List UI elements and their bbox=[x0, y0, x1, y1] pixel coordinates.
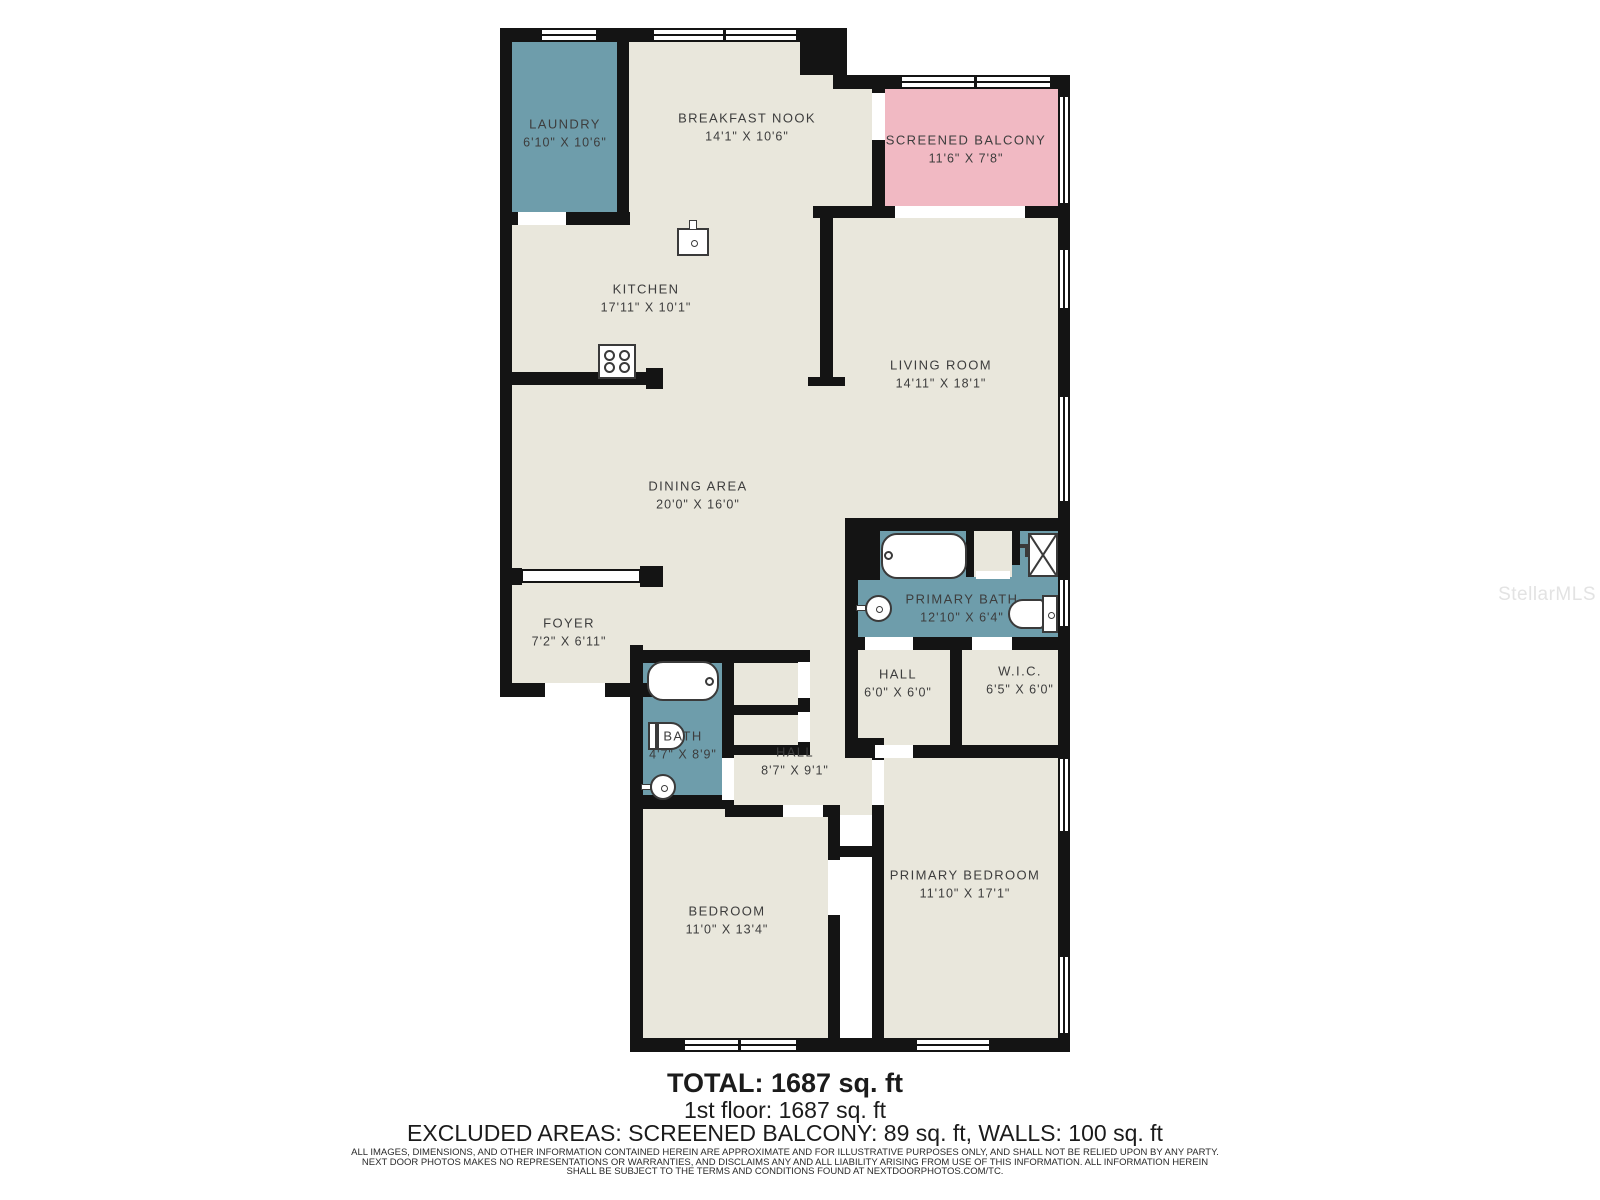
floorplan-page: LAUNDRY 6'10" X 10'6" BREAKFAST NOOK 14'… bbox=[0, 0, 1600, 1200]
excluded-areas-text: EXCLUDED AREAS: SCREENED BALCONY: 89 sq.… bbox=[0, 1120, 1570, 1147]
burner-icon bbox=[619, 362, 630, 373]
primary-toilet-tank-icon bbox=[1042, 595, 1058, 633]
room-name: PRIMARY BEDROOM bbox=[890, 868, 1041, 883]
room-name: PRIMARY BATH bbox=[906, 592, 1019, 607]
wall-foyer-closet-capl bbox=[508, 568, 522, 585]
room-label-bath: BATH 4'7" X 8'9" bbox=[649, 729, 717, 762]
window-primary-2 bbox=[1058, 955, 1070, 1035]
disclaimer-text: ALL IMAGES, DIMENSIONS, AND OTHER INFORM… bbox=[0, 1148, 1570, 1177]
room-dims: 7'2" X 6'11" bbox=[532, 635, 607, 649]
wall-left bbox=[500, 28, 512, 695]
room-dims: 11'0" X 13'4" bbox=[686, 923, 769, 937]
room-name: FOYER bbox=[532, 616, 607, 631]
wall-laundry-divider bbox=[617, 40, 629, 212]
wall-hall-wic-divider bbox=[950, 650, 962, 748]
wall-closet-divider bbox=[840, 846, 872, 857]
bath-sink-stub bbox=[641, 784, 651, 790]
wall-living-left-cap bbox=[808, 377, 845, 386]
door-wic bbox=[972, 637, 1012, 650]
window-living-2 bbox=[1058, 395, 1070, 503]
room-label-wic: W.I.C. 6'5" X 6'0" bbox=[986, 664, 1054, 697]
wall-balcony-bottom-r bbox=[1025, 206, 1070, 218]
disclaimer-line-3: SHALL BE SUBJECT TO THE TERMS AND CONDIT… bbox=[0, 1167, 1570, 1177]
room-name: DINING AREA bbox=[648, 479, 747, 494]
room-label-primary-bedroom: PRIMARY BEDROOM 11'10" X 17'1" bbox=[890, 868, 1041, 901]
room-name: KITCHEN bbox=[601, 282, 692, 297]
shower-icon bbox=[1028, 533, 1058, 577]
room-dims: 14'1" X 10'6" bbox=[678, 130, 816, 144]
room-dims: 4'7" X 8'9" bbox=[649, 748, 717, 762]
room-label-kitchen: KITCHEN 17'11" X 10'1" bbox=[601, 282, 692, 315]
window-laundry bbox=[540, 28, 598, 42]
door-balcony-slider bbox=[895, 206, 1025, 218]
stellar-mls-watermark: StellarMLS bbox=[1498, 584, 1596, 606]
wall-bath-bottom bbox=[630, 795, 734, 809]
door-laundry bbox=[518, 212, 566, 225]
room-name: LIVING ROOM bbox=[890, 358, 992, 373]
door-pbath-alcove bbox=[976, 571, 1010, 579]
room-dims: 6'0" X 6'0" bbox=[864, 686, 932, 700]
primary-tub-faucet-icon bbox=[884, 551, 893, 560]
room-label-hall-small: HALL 6'0" X 6'0" bbox=[864, 667, 932, 700]
total-sqft-text: TOTAL: 1687 sq. ft bbox=[0, 1068, 1570, 1099]
primary-bathtub-icon bbox=[881, 533, 967, 579]
room-label-laundry: LAUNDRY 6'10" X 10'6" bbox=[523, 117, 607, 150]
room-label-foyer: FOYER 7'2" X 6'11" bbox=[532, 616, 607, 649]
kitchen-sink-icon bbox=[677, 228, 709, 256]
room-dims: 17'11" X 10'1" bbox=[601, 301, 692, 315]
window-bedroom-mullion bbox=[738, 1038, 741, 1052]
wall-bedroom-left bbox=[630, 645, 643, 1052]
tub-faucet-icon bbox=[705, 677, 714, 686]
room-label-breakfast-nook: BREAKFAST NOOK 14'1" X 10'6" bbox=[678, 111, 816, 144]
primary-sink-stub bbox=[856, 605, 866, 611]
room-label-living-room: LIVING ROOM 14'11" X 18'1" bbox=[890, 358, 992, 391]
window-balcony-mullion bbox=[974, 75, 977, 89]
room-dims: 12'10" X 6'4" bbox=[906, 611, 1019, 625]
room-dims: 11'6" X 7'8" bbox=[886, 152, 1046, 166]
room-name: HALL bbox=[864, 667, 932, 682]
breakfast-nook-pocket bbox=[845, 89, 872, 212]
window-nook-mullion bbox=[723, 28, 726, 42]
room-dims: 8'7" X 9'1" bbox=[761, 764, 829, 778]
room-name: W.I.C. bbox=[986, 664, 1054, 679]
door-primary-bedroom bbox=[872, 760, 884, 805]
window-primary-bottom bbox=[915, 1038, 991, 1052]
wall-right bbox=[1058, 75, 1070, 1052]
room-name: LAUNDRY bbox=[523, 117, 607, 132]
room-label-screened-balcony: SCREENED BALCONY 11'6" X 7'8" bbox=[886, 133, 1046, 166]
door-pbath-hall bbox=[865, 637, 913, 650]
room-dims: 11'10" X 17'1" bbox=[890, 887, 1041, 901]
room-label-primary-bath: PRIMARY BATH 12'10" X 6'4" bbox=[906, 592, 1019, 625]
door-bath bbox=[722, 758, 734, 800]
door-entry bbox=[545, 683, 605, 697]
wall-kitchen-dining bbox=[512, 372, 660, 385]
room-dims: 6'5" X 6'0" bbox=[986, 683, 1054, 697]
primary-sink-icon bbox=[865, 595, 892, 622]
room-label-hall: HALL 8'7" X 9'1" bbox=[761, 745, 829, 778]
room-label-dining-area: DINING AREA 20'0" X 16'0" bbox=[648, 479, 747, 512]
wall-balcony-bottom-l bbox=[813, 206, 895, 218]
wall-nook-pillar bbox=[800, 28, 845, 75]
room-dims: 6'10" X 10'6" bbox=[523, 136, 607, 150]
door-bedroom-closet bbox=[828, 860, 840, 915]
room-dims: 20'0" X 16'0" bbox=[648, 498, 747, 512]
stove-icon bbox=[598, 344, 636, 379]
window-living-1 bbox=[1058, 248, 1070, 310]
room-name: SCREENED BALCONY bbox=[886, 133, 1046, 148]
burner-icon bbox=[604, 362, 615, 373]
wall-pbath-alcove-r bbox=[1012, 531, 1020, 565]
wall-foyer-closet-capr bbox=[640, 566, 663, 587]
wall-kitchen-cap bbox=[646, 368, 663, 389]
window-pbath bbox=[1058, 578, 1070, 628]
window-primary-1 bbox=[1058, 757, 1070, 833]
bath-sink-icon bbox=[650, 774, 676, 800]
room-name: HALL bbox=[761, 745, 829, 760]
room-label-bedroom: BEDROOM 11'0" X 13'4" bbox=[686, 904, 769, 937]
wall-closet-left bbox=[828, 815, 840, 1038]
window-balcony-right bbox=[1058, 95, 1070, 205]
wall-pbath-alcove-l bbox=[966, 531, 974, 577]
room-dims: 14'11" X 18'1" bbox=[890, 377, 992, 391]
shower-x-glyph bbox=[1030, 535, 1056, 575]
door-hallcloset-2 bbox=[798, 712, 810, 742]
burner-icon bbox=[619, 350, 630, 361]
door-hallcloset-1 bbox=[798, 662, 810, 698]
wall-pbath-tub-chunk bbox=[845, 530, 880, 580]
wall-living-left bbox=[820, 218, 833, 385]
door-hall6 bbox=[875, 745, 913, 758]
kitchen-faucet-icon bbox=[689, 220, 697, 230]
foyer-closet-doors bbox=[521, 569, 641, 583]
room-name: BATH bbox=[649, 729, 717, 744]
door-balcony bbox=[872, 93, 885, 140]
door-bedroom bbox=[783, 805, 823, 817]
room-name: BREAKFAST NOOK bbox=[678, 111, 816, 126]
burner-icon bbox=[604, 350, 615, 361]
room-name: BEDROOM bbox=[686, 904, 769, 919]
